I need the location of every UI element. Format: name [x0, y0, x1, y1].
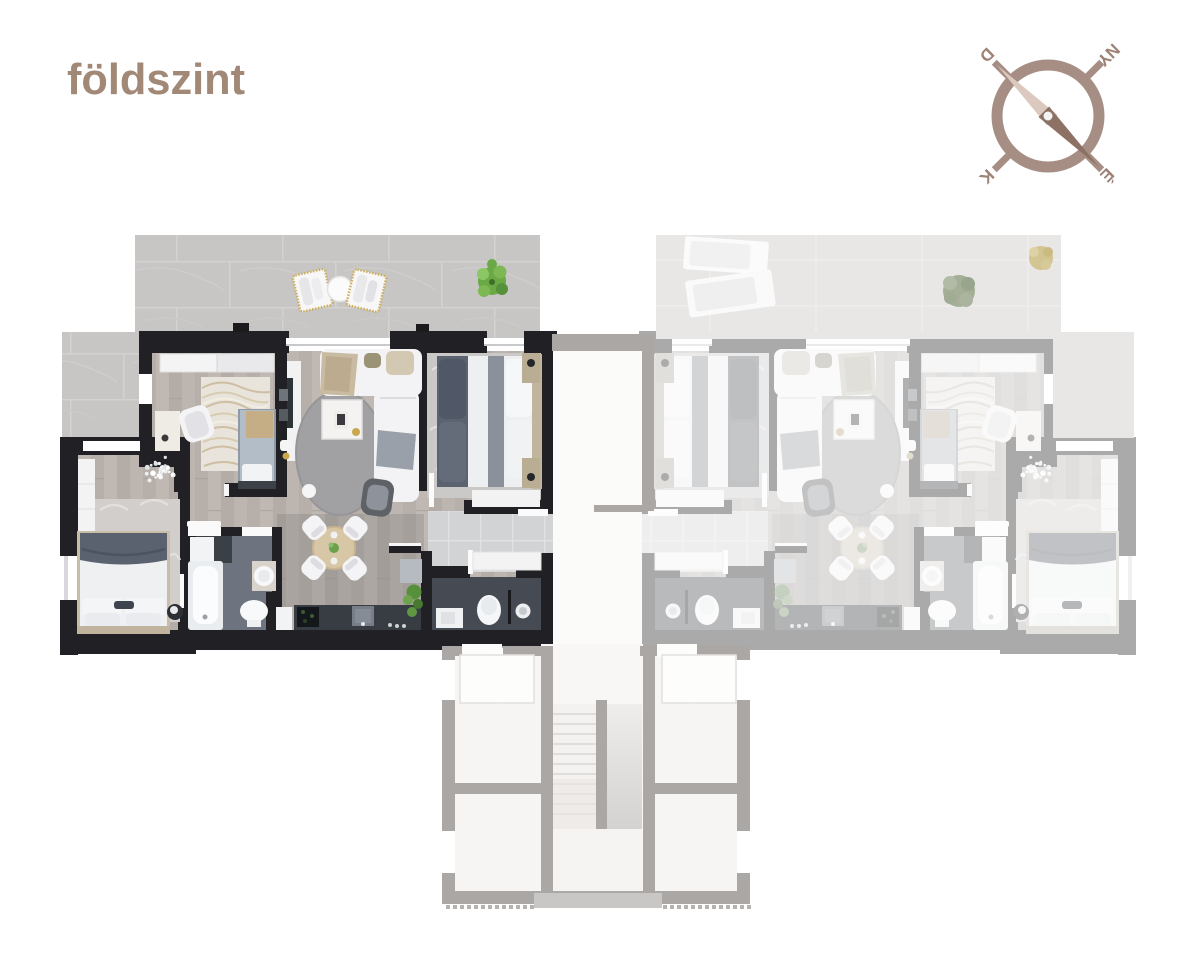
svg-text:földszint: földszint	[67, 55, 245, 104]
